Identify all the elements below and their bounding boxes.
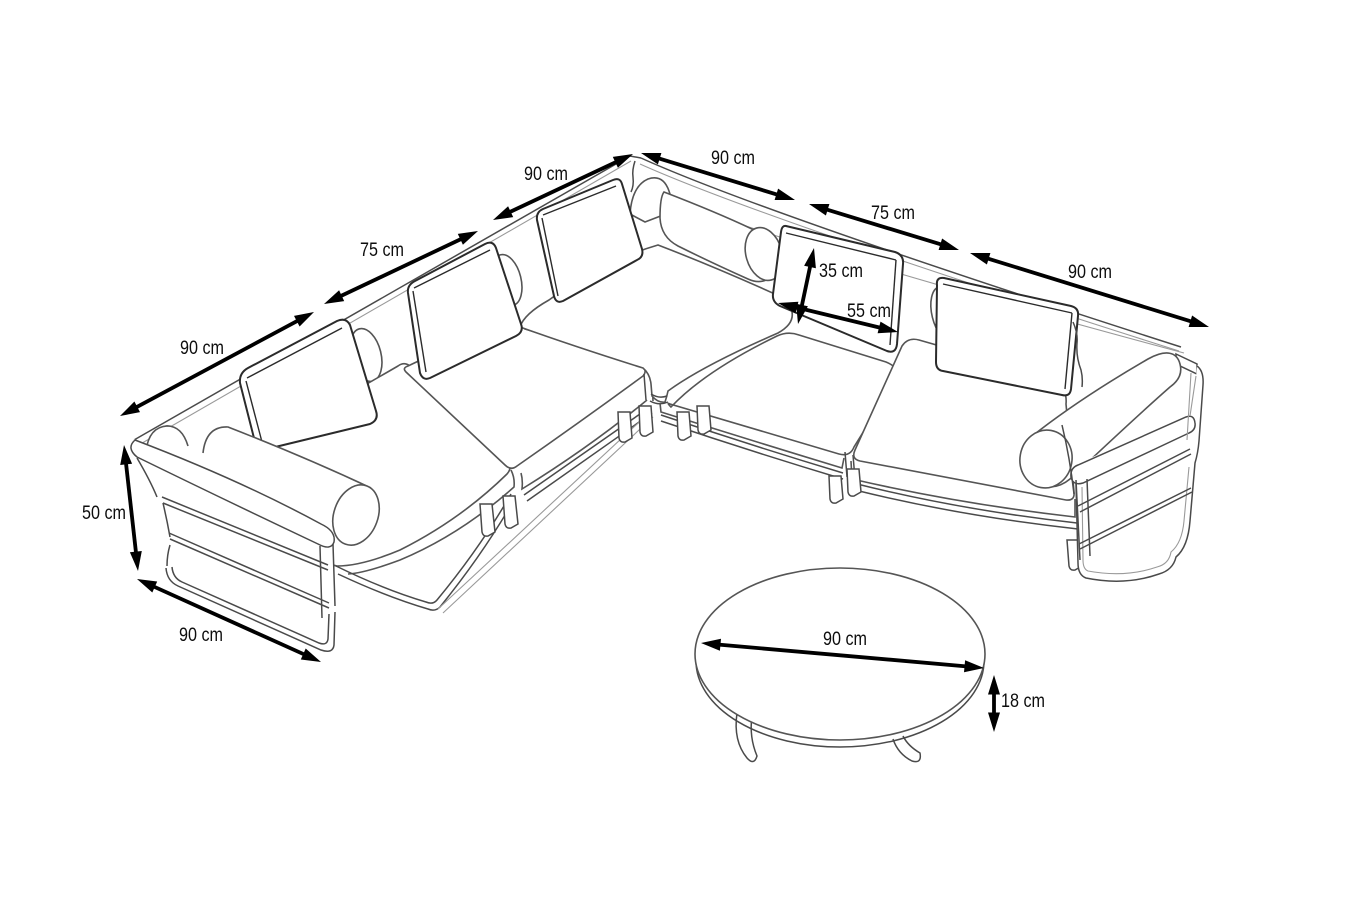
svg-text:75 cm: 75 cm [360,240,404,261]
svg-text:55 cm: 55 cm [847,301,891,322]
svg-text:75 cm: 75 cm [871,203,915,224]
svg-text:90 cm: 90 cm [711,148,755,169]
svg-text:90 cm: 90 cm [180,338,224,359]
svg-text:90 cm: 90 cm [179,625,223,646]
svg-text:50 cm: 50 cm [82,503,126,524]
svg-text:90 cm: 90 cm [823,629,867,650]
svg-text:90 cm: 90 cm [1068,262,1112,283]
svg-text:18 cm: 18 cm [1001,691,1045,712]
svg-text:35 cm: 35 cm [819,261,863,282]
svg-text:90 cm: 90 cm [524,164,568,185]
